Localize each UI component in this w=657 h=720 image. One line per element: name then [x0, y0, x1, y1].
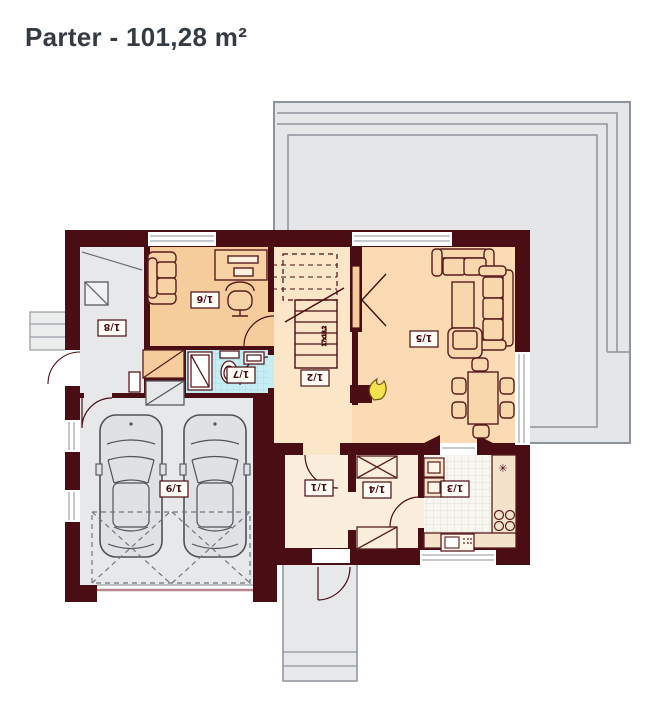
storage-units — [143, 350, 184, 405]
floor-plan-drawing: 17x18,2 — [0, 0, 657, 720]
room-label-1-7: 1/7 — [227, 367, 255, 383]
room-label-1-1: 1/1 — [305, 480, 333, 496]
armchair-icon — [448, 328, 482, 358]
front-door-opening — [312, 549, 350, 563]
kitchen-sink-icon: ✳ — [498, 462, 507, 475]
svg-text:1/1: 1/1 — [311, 481, 328, 492]
room-label-1-9: 1/9 — [160, 481, 188, 497]
sink-icon — [244, 352, 264, 364]
sofa-icon — [148, 252, 176, 304]
svg-text:1/2: 1/2 — [307, 371, 324, 382]
room-label-1-8: 1/8 — [98, 320, 126, 336]
garage-door — [97, 585, 253, 602]
svg-text:1/4: 1/4 — [368, 483, 385, 494]
room-label-1-2: 1/2 — [301, 370, 329, 386]
door-leaf — [129, 372, 140, 392]
oven-icon — [441, 534, 474, 551]
svg-text:1/8: 1/8 — [103, 321, 120, 332]
coffee-table-icon — [452, 282, 474, 328]
svg-text:1/9: 1/9 — [166, 482, 183, 493]
svg-text:1/5: 1/5 — [416, 332, 433, 343]
room-label-1-4: 1/4 — [363, 482, 391, 498]
svg-text:1/3: 1/3 — [447, 482, 464, 493]
entry-porch — [283, 560, 357, 681]
hall-stairs-floor — [274, 247, 352, 443]
desk-icon — [215, 250, 267, 280]
shower-icon — [188, 352, 212, 390]
side-entry-steps — [30, 312, 66, 350]
svg-text:1/6: 1/6 — [196, 293, 213, 304]
floor-plan-page: Parter - 101,28 m² — [0, 0, 657, 720]
page-title: Parter - 101,28 m² — [25, 22, 247, 53]
stair-dimension-note: 17x18,2 — [322, 326, 328, 346]
room-label-1-6: 1/6 — [191, 292, 219, 308]
svg-text:1/7: 1/7 — [233, 368, 250, 379]
room-label-1-5: 1/5 — [410, 331, 438, 347]
sofa-three-seat-icon — [479, 266, 513, 350]
side-door-opening — [65, 350, 80, 386]
room-entry-floor — [285, 455, 348, 548]
fireplace-hearth — [350, 385, 372, 403]
room-label-1-3: 1/3 — [441, 481, 469, 497]
